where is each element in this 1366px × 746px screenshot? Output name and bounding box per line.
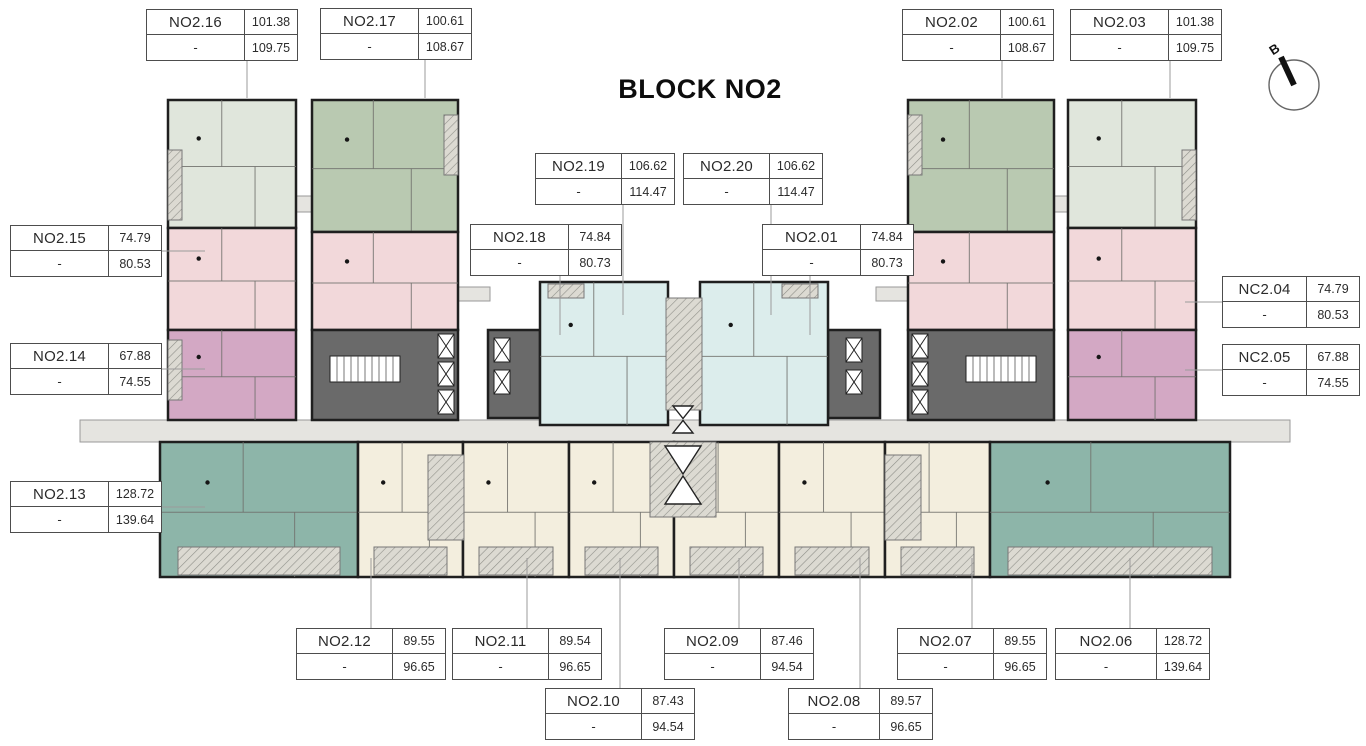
compass-icon: B — [1256, 38, 1332, 114]
floor-plan-page: BLOCK NO2 B NO2.16101.38-109.75NO2.17100… — [0, 0, 1366, 746]
floor-plan-drawing — [0, 0, 1366, 746]
compass-north-label: B — [1266, 40, 1282, 58]
page-title: BLOCK NO2 — [560, 74, 840, 105]
north-compass: B — [1256, 38, 1332, 119]
